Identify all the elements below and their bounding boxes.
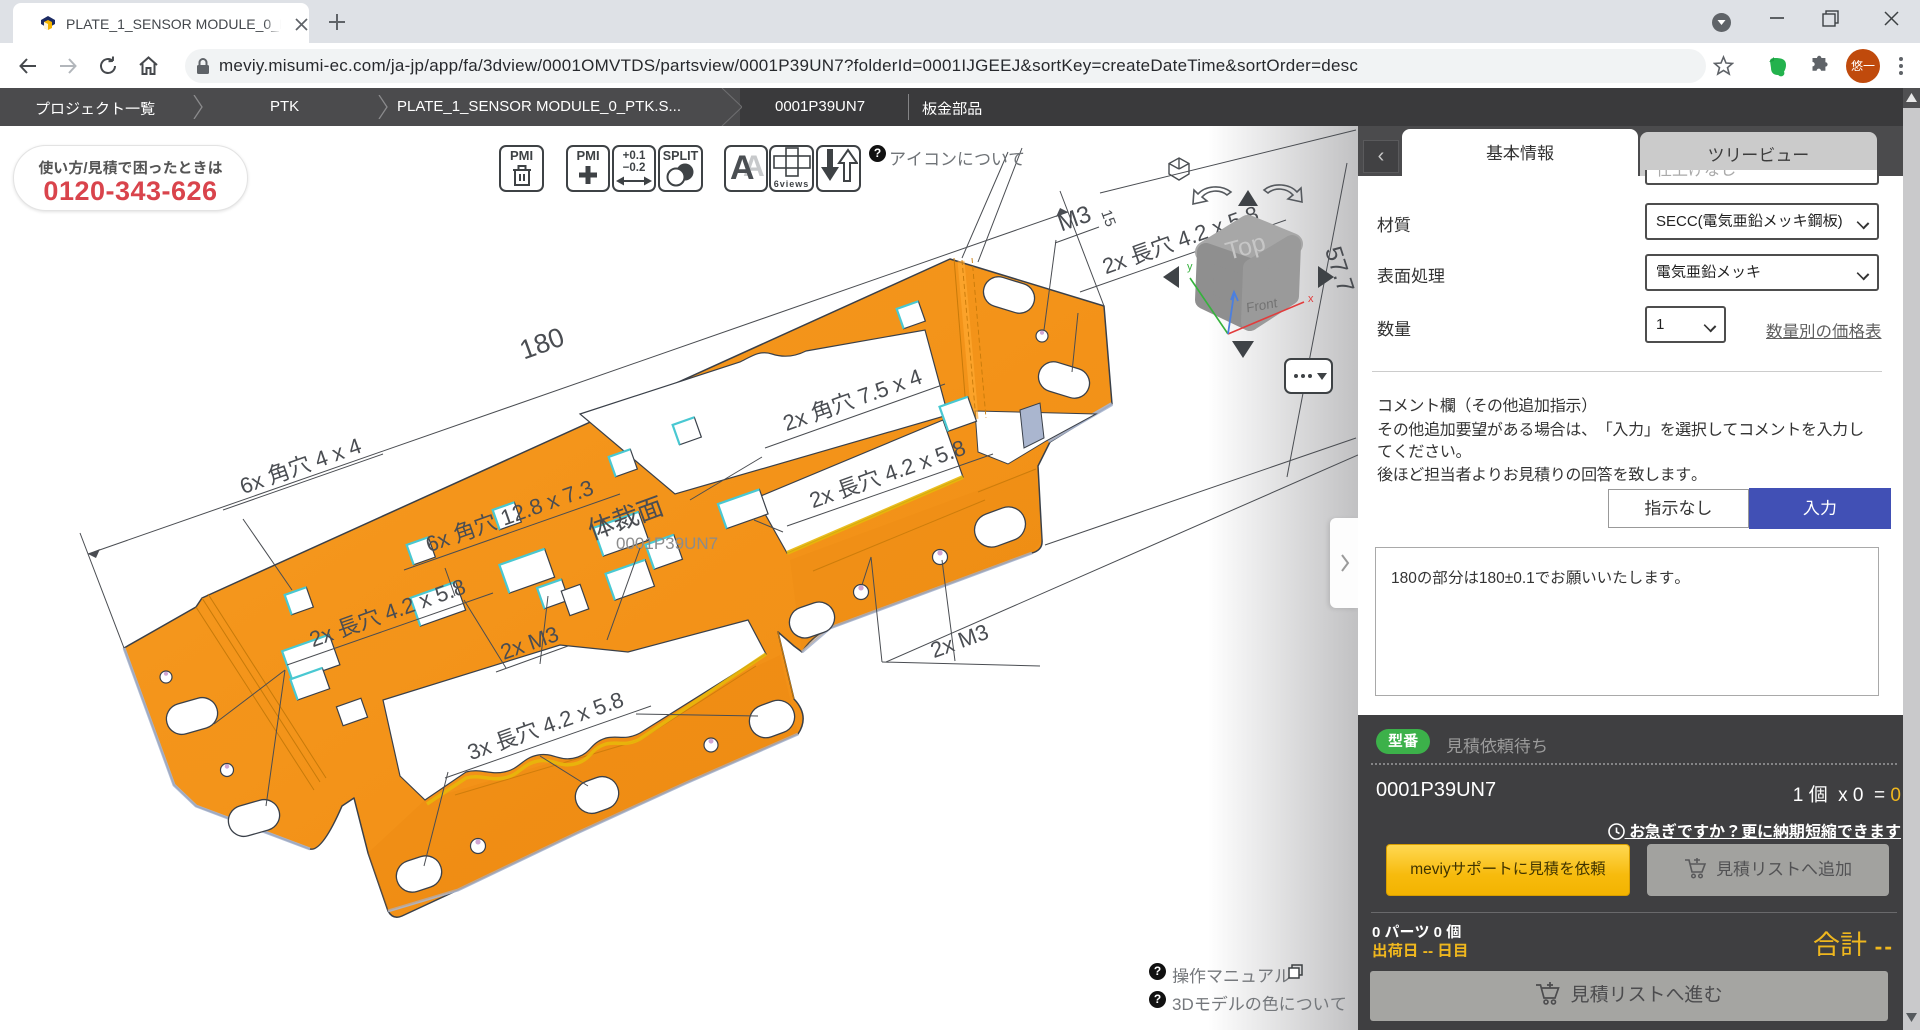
- svg-text:0001P39UN7: 0001P39UN7: [616, 534, 718, 553]
- svg-text:2x M3: 2x M3: [927, 619, 992, 663]
- svg-text:15: 15: [1097, 208, 1119, 229]
- svg-text:x: x: [1308, 293, 1314, 305]
- svg-text:y: y: [1187, 261, 1193, 273]
- svg-text:M3: M3: [1054, 201, 1094, 238]
- svg-text:180: 180: [516, 322, 569, 366]
- svg-text:6x 角穴 4 x 4: 6x 角穴 4 x 4: [236, 433, 364, 499]
